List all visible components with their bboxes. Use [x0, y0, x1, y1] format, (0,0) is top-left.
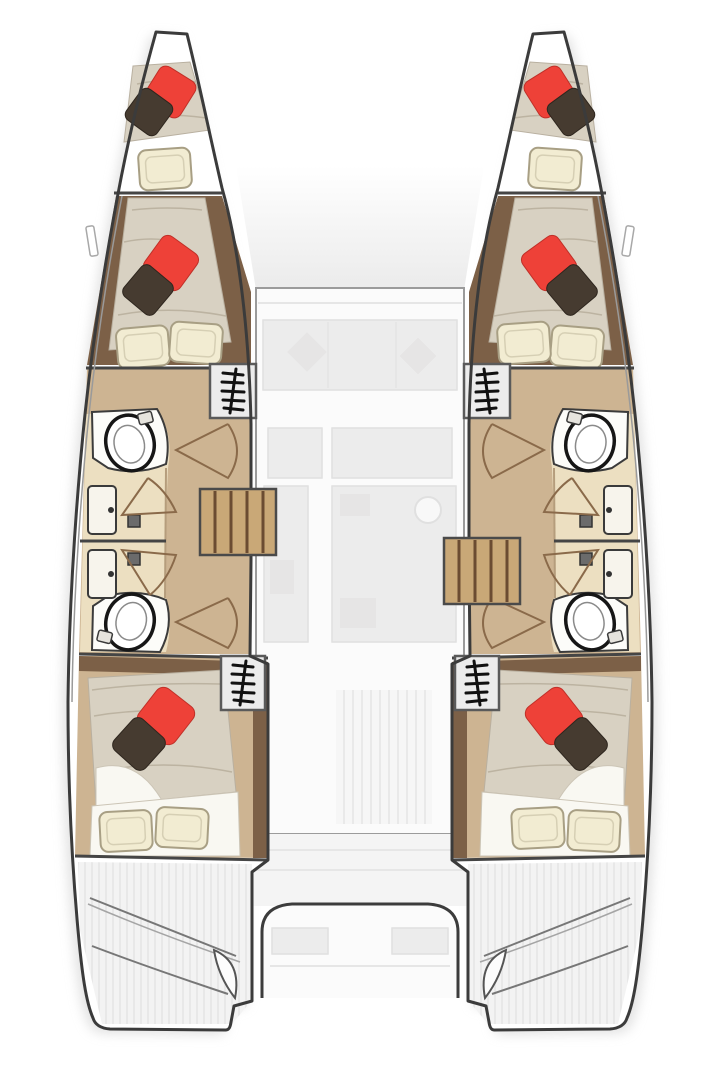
cockpit: [262, 904, 458, 998]
cockpit-bench: [392, 928, 448, 954]
floor-plan-canvas: [0, 0, 720, 1080]
starboard-hull-stairs: [444, 538, 520, 604]
port-hull-stairs: [200, 489, 276, 555]
saloon-table: [332, 428, 452, 478]
saloon-sofa: [263, 320, 457, 390]
catamaran-floor-plan: [0, 0, 720, 1080]
galley-island: [332, 486, 456, 642]
chart-seat: [268, 428, 322, 478]
foredeck: [236, 166, 484, 290]
starboard-hull: [452, 32, 652, 1030]
saloon-floor: [336, 690, 432, 824]
cockpit-bench: [272, 928, 328, 954]
